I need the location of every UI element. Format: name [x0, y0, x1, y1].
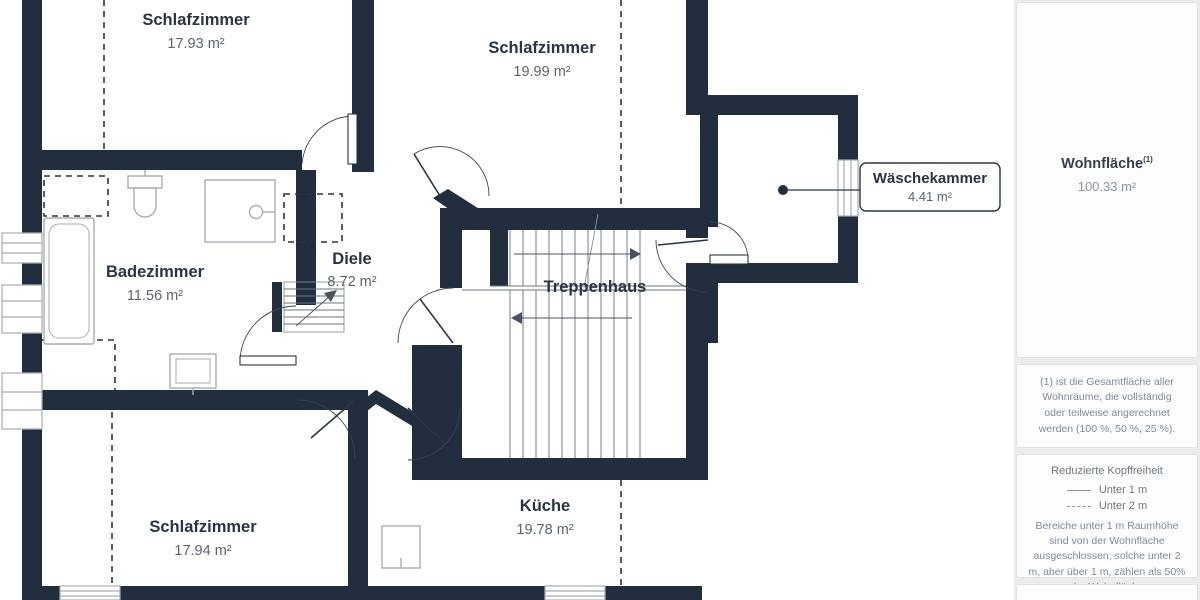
room-area-diele: 8.72 m²: [327, 274, 376, 290]
door-arc-badezimmer: [240, 306, 296, 362]
door-arc-treppenhaus: [398, 288, 453, 343]
legend-item-under-2m: Unter 2 m: [1027, 500, 1187, 512]
sidebar: Wohnfläche(1) 100.33 m² (1) ist die Gesa…: [1014, 0, 1200, 600]
shower-icon: [205, 180, 275, 242]
room-area-kueche: 19.78 m²: [516, 522, 573, 538]
room-label-diele: Diele: [332, 250, 371, 268]
kitchen-fixture: [382, 526, 420, 568]
total-area-value: 100.33 m²: [1017, 179, 1197, 194]
window-icon: [545, 586, 605, 600]
dashed-line-icon: [1067, 506, 1091, 507]
room-area-schlafzimmer-3: 17.94 m²: [174, 543, 231, 559]
door-arc-waeschekammer: [710, 222, 748, 260]
sink-icon: [170, 354, 216, 395]
legend-card: Reduzierte Kopffreiheit Unter 1 m Unter …: [1016, 454, 1198, 578]
room-label-badezimmer: Badezimmer: [106, 263, 205, 281]
callout-dot: [778, 185, 788, 195]
stair-arrow-up: [514, 248, 641, 260]
legend-item-under-1m: Unter 1 m: [1027, 484, 1187, 496]
callout-room-name: Wäschekammer: [873, 170, 987, 187]
room-label-schlafzimmer-1: Schlafzimmer: [142, 11, 250, 29]
legend-item-label: Unter 1 m: [1099, 484, 1147, 496]
room-label-kueche: Küche: [520, 497, 570, 515]
footnote-text: (1) ist die Gesamtfläche aller Wohnräume…: [1017, 369, 1197, 444]
callout-room-area: 4.41 m²: [908, 189, 953, 204]
room-area-badezimmer: 11.56 m²: [127, 288, 183, 304]
window-icon: [2, 373, 42, 429]
room-area-schlafzimmer-2: 19.99 m²: [513, 64, 570, 80]
room-label-treppenhaus: Treppenhaus: [544, 278, 647, 296]
total-area-label-text: Wohnfläche: [1061, 156, 1143, 172]
room-label-schlafzimmer-2: Schlafzimmer: [488, 39, 596, 57]
toilet-icon: [128, 170, 162, 217]
solid-line-icon: [1067, 490, 1091, 491]
waeschekammer-callout: Wäschekammer 4.41 m²: [778, 163, 1000, 211]
window-icon: [2, 233, 42, 263]
window-icon: [838, 160, 858, 216]
window-icon: [60, 586, 120, 600]
footnote-card: (1) ist die Gesamtfläche aller Wohnräume…: [1016, 364, 1198, 448]
total-area-label: Wohnfläche(1): [1017, 155, 1197, 172]
window-icon: [2, 285, 42, 333]
room-area-schlafzimmer-1: 17.93 m²: [167, 36, 224, 52]
room-label-schlafzimmer-3: Schlafzimmer: [149, 518, 257, 536]
sidebar-bottom-card: [1016, 584, 1198, 600]
total-area-footnote-marker: (1): [1143, 155, 1153, 164]
floorplan-page: Schlafzimmer 17.93 m² Schlafzimmer 19.99…: [0, 0, 1200, 600]
legend-item-label: Unter 2 m: [1099, 500, 1147, 512]
total-area-card: Wohnfläche(1) 100.33 m²: [1016, 2, 1198, 358]
stair-treads-lower: [510, 290, 640, 458]
floorplan-drawing: Schlafzimmer 17.93 m² Schlafzimmer 19.99…: [0, 0, 1014, 600]
legend-title: Reduzierte Kopffreiheit: [1027, 465, 1187, 477]
door-arc-schlafzimmer-1: [302, 116, 354, 164]
